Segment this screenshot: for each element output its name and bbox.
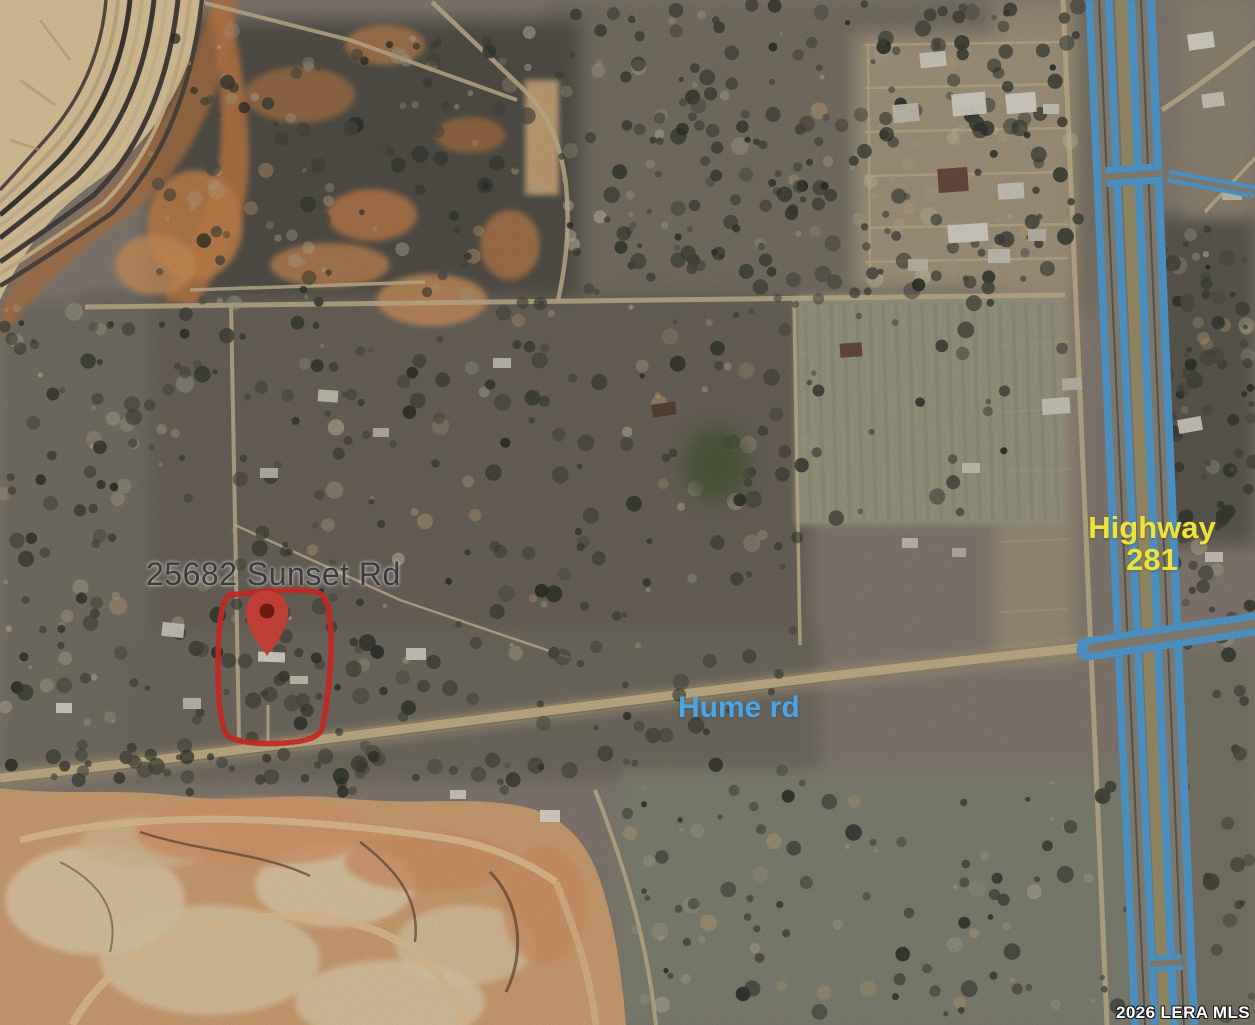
map-canvas — [0, 0, 1255, 1025]
highway-label-line1: Highway — [1088, 512, 1216, 544]
mls-watermark: 2026 LERA MLS — [1116, 1003, 1250, 1023]
address-label: 25682 Sunset Rd — [146, 556, 401, 593]
highway-281-label: Highway 281 — [1088, 512, 1216, 575]
highway-label-line2: 281 — [1088, 544, 1216, 576]
satellite-map-image: 25682 Sunset Rd Highway 281 Hume rd 2026… — [0, 0, 1255, 1025]
hume-rd-label: Hume rd — [678, 691, 800, 725]
photo-grain-overlay — [0, 0, 1255, 1025]
